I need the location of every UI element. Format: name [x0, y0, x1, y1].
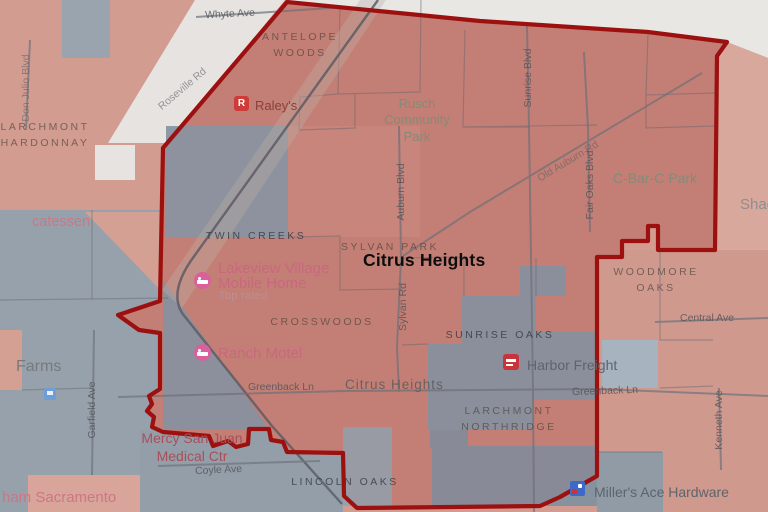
logo-dot — [578, 484, 582, 488]
harbor-freight-icon[interactable] — [503, 354, 519, 370]
raleys-store-icon[interactable]: R — [234, 96, 249, 111]
lodging-icon-ranch-motel[interactable] — [194, 344, 211, 361]
map-viewport[interactable]: Whyte Ave Roseville Rd Sunrise Blvd Old … — [0, 0, 768, 512]
bed-glyph — [197, 352, 208, 356]
bed-glyph — [197, 280, 208, 284]
logo-bar — [506, 364, 513, 366]
map-canvas[interactable] — [0, 0, 768, 512]
logo-mark — [572, 489, 577, 494]
ace-hardware-icon[interactable] — [570, 481, 585, 496]
school-glyph — [47, 391, 53, 395]
lodging-icon-lakeview[interactable] — [194, 272, 211, 289]
school-icon[interactable] — [44, 388, 56, 400]
logo-bar — [506, 359, 516, 362]
